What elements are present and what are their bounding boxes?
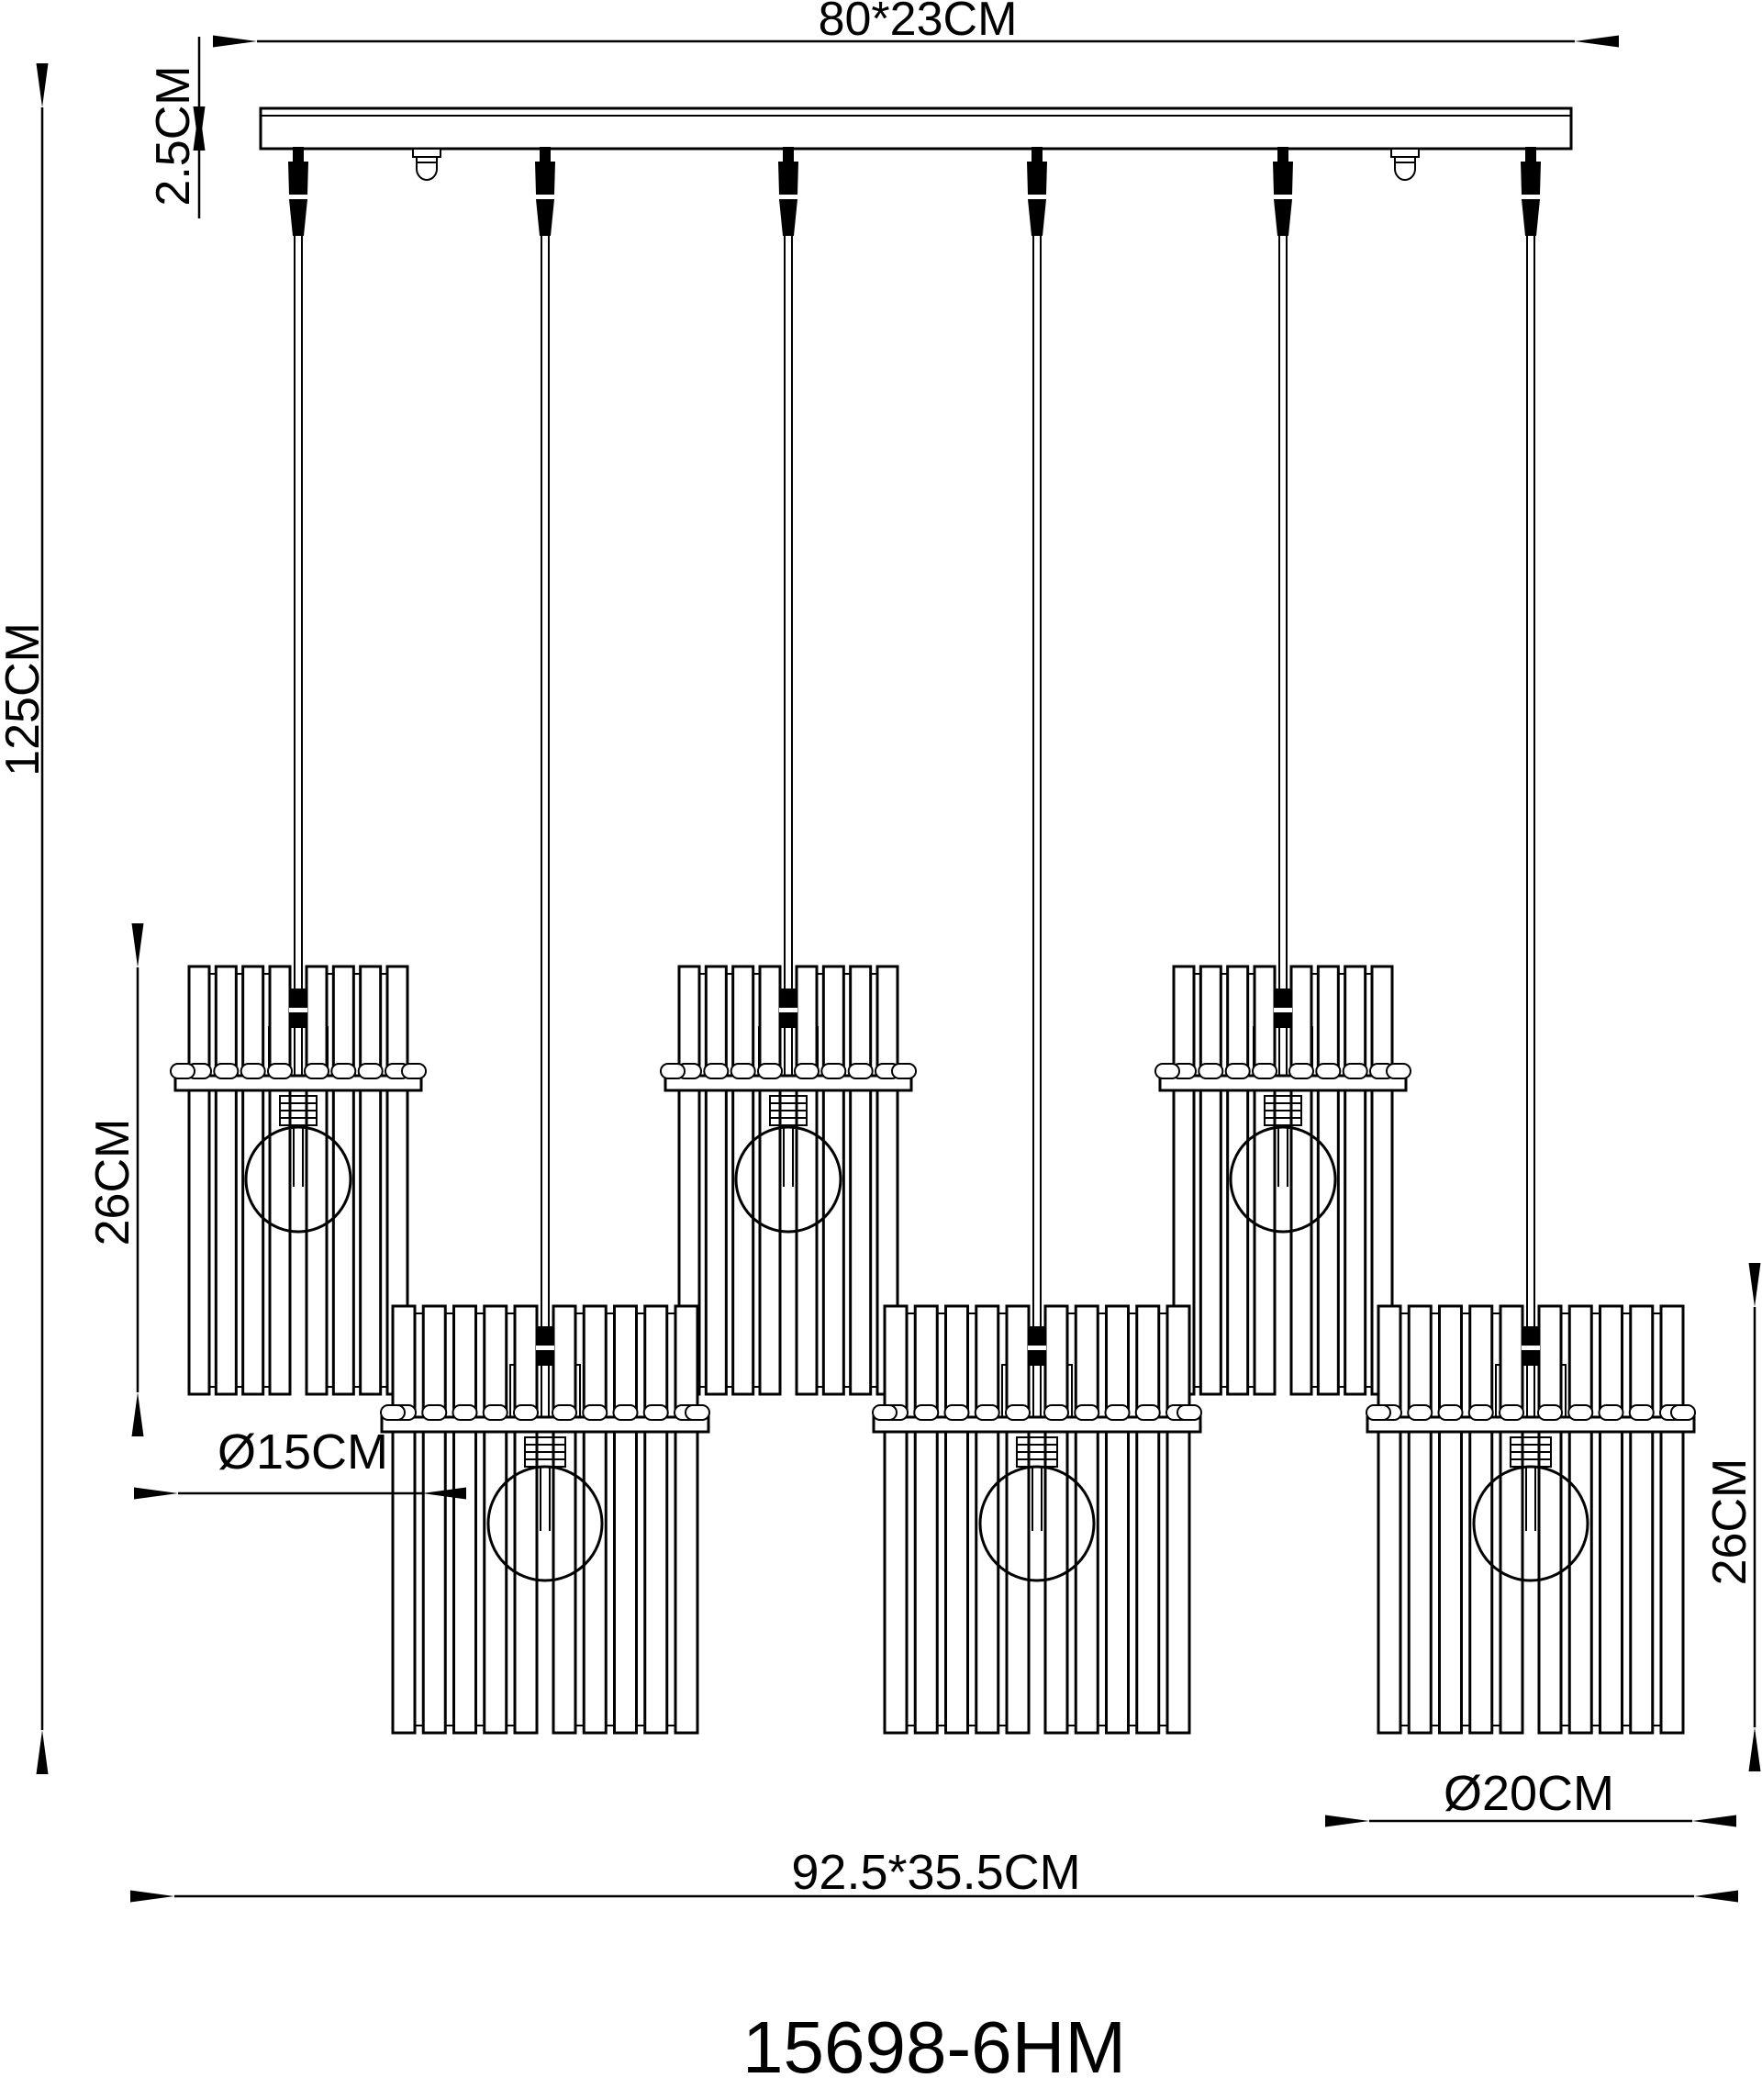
large-shade-height-label: 26CM xyxy=(1703,1458,1756,1586)
small-shade-3 xyxy=(1155,966,1411,1394)
canopy-screws xyxy=(413,149,1419,180)
small-shade-diameter-label: Ø15CM xyxy=(217,1424,388,1480)
canopy-thickness-label: 2.5CM xyxy=(147,65,200,206)
small-shade-height-label: 26CM xyxy=(86,1119,139,1246)
small-shade-2 xyxy=(661,966,916,1394)
pendant-shades xyxy=(171,966,1695,1733)
overall-drop-label: 125CM xyxy=(0,622,50,776)
large-shade-2 xyxy=(873,1306,1201,1733)
overall-size-label: 92.5*35.5CM xyxy=(791,1845,1080,1900)
large-shade-1 xyxy=(381,1306,709,1733)
large-shade-3 xyxy=(1366,1306,1695,1733)
ceiling-canopy-plate xyxy=(261,108,1571,149)
large-shade-diameter-label: Ø20CM xyxy=(1444,1766,1614,1821)
model-number-label: 15698-6HM xyxy=(742,2006,1126,2088)
canopy-width-label: 80*23CM xyxy=(819,0,1018,46)
cord-grip-connectors xyxy=(288,147,1541,236)
lamp-fixture xyxy=(171,108,1695,1733)
pendant-light-technical-drawing: 80*23CM 2.5CM 125CM 26CM Ø15CM Ø20CM 26C… xyxy=(0,0,1762,2100)
small-shade-1 xyxy=(171,966,426,1394)
